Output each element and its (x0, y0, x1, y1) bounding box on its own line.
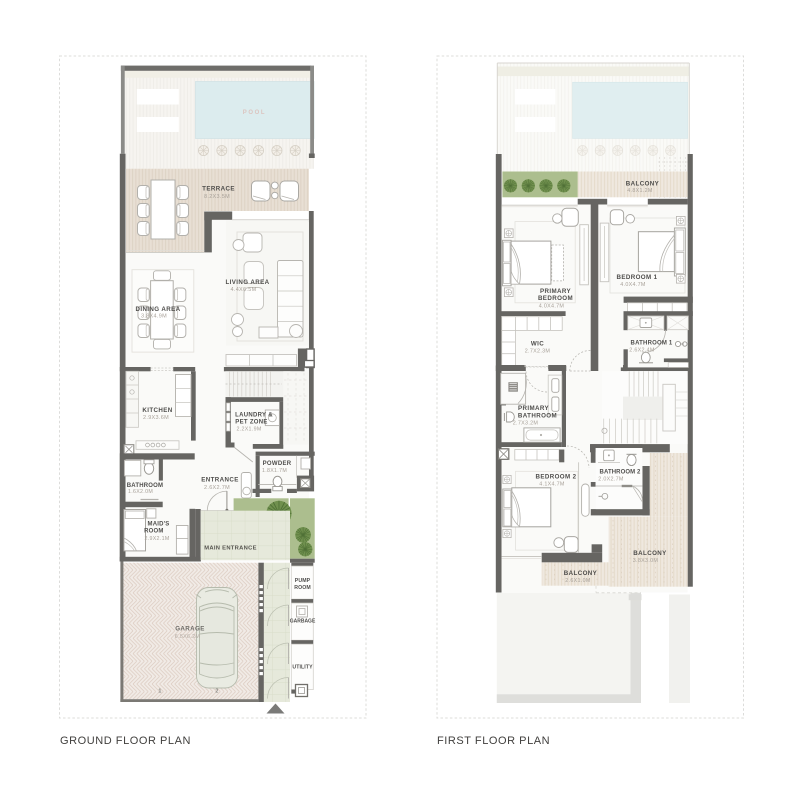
svg-text:2.6X1.0M: 2.6X1.0M (565, 578, 591, 584)
svg-text:ROOM: ROOM (294, 585, 311, 591)
svg-text:BALCONY: BALCONY (626, 181, 660, 188)
svg-text:1.6X2.0M: 1.6X2.0M (128, 489, 153, 495)
svg-text:1.8X1.7M: 1.8X1.7M (262, 468, 287, 474)
svg-text:4.8X1.2M: 4.8X1.2M (627, 188, 653, 194)
svg-text:2.6X2.7M: 2.6X2.7M (204, 485, 230, 491)
svg-text:GARBAGE: GARBAGE (290, 619, 316, 625)
svg-text:BATHROOM: BATHROOM (127, 483, 163, 489)
svg-text:2.2X1.9M: 2.2X1.9M (236, 427, 261, 433)
svg-text:TERRACE: TERRACE (202, 186, 235, 193)
svg-text:MAID'S: MAID'S (148, 522, 170, 528)
svg-text:BATHROOM 2: BATHROOM 2 (600, 470, 641, 476)
svg-text:PET ZONE: PET ZONE (235, 420, 267, 426)
svg-text:3.8X3.0M: 3.8X3.0M (633, 558, 659, 564)
svg-text:6.5X6.2M: 6.5X6.2M (175, 634, 201, 640)
svg-text:2.9X3.6M: 2.9X3.6M (143, 415, 169, 421)
svg-text:DINING AREA: DINING AREA (135, 306, 180, 313)
svg-text:PRIMARY: PRIMARY (540, 288, 572, 295)
svg-text:PUMP: PUMP (295, 578, 311, 584)
svg-text:ROOM: ROOM (144, 529, 163, 535)
svg-text:ENTRANCE: ENTRANCE (201, 477, 239, 484)
svg-text:MAIN ENTRANCE: MAIN ENTRANCE (204, 545, 257, 551)
svg-text:POWDER: POWDER (263, 461, 292, 467)
svg-text:LIVING AREA: LIVING AREA (225, 279, 269, 286)
svg-text:BEDROOM 1: BEDROOM 1 (616, 274, 657, 281)
svg-text:8.2X3.5M: 8.2X3.5M (204, 194, 230, 200)
svg-text:3.8X4.9M: 3.8X4.9M (141, 314, 167, 320)
svg-text:BEDROOM: BEDROOM (538, 295, 573, 302)
svg-text:LAUNDRY &: LAUNDRY & (235, 413, 273, 419)
svg-text:2: 2 (215, 689, 218, 695)
svg-text:WIC: WIC (531, 341, 544, 348)
svg-text:POOL: POOL (243, 110, 266, 116)
svg-text:GARAGE: GARAGE (175, 626, 205, 633)
svg-text:2.6X2.4M: 2.6X2.4M (629, 347, 655, 353)
svg-text:4.0X4.7M: 4.0X4.7M (539, 303, 565, 309)
svg-text:2.7X2.3M: 2.7X2.3M (525, 348, 551, 354)
svg-text:BATHROOM: BATHROOM (518, 413, 557, 420)
svg-text:GROUND FLOOR PLAN: GROUND FLOOR PLAN (60, 735, 191, 747)
svg-text:UTILITY: UTILITY (292, 665, 313, 671)
svg-text:BATHROOM 1: BATHROOM 1 (631, 340, 673, 346)
svg-text:FIRST FLOOR PLAN: FIRST FLOOR PLAN (437, 735, 550, 747)
svg-text:PRIMARY: PRIMARY (518, 405, 550, 412)
svg-text:2.7X3.2M: 2.7X3.2M (513, 421, 539, 427)
svg-text:2.0X2.7M: 2.0X2.7M (598, 477, 624, 483)
svg-text:4.1X4.7M: 4.1X4.7M (539, 482, 565, 488)
svg-text:BEDROOM 2: BEDROOM 2 (535, 473, 576, 480)
svg-text:1: 1 (158, 689, 161, 695)
svg-text:4.4X6.5M: 4.4X6.5M (231, 287, 257, 293)
svg-text:KITCHEN: KITCHEN (142, 407, 172, 414)
svg-text:BALCONY: BALCONY (633, 550, 667, 557)
svg-text:BALCONY: BALCONY (564, 570, 598, 577)
svg-text:4.0X4.7M: 4.0X4.7M (620, 282, 646, 288)
svg-text:2.9X2.1M: 2.9X2.1M (144, 536, 169, 542)
